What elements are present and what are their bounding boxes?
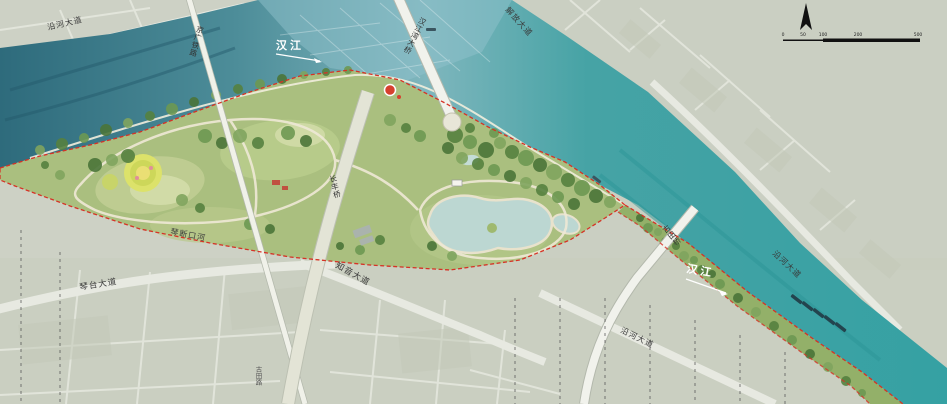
lake-island xyxy=(487,223,497,233)
masterplan-map: 汉江 汉江 汉江湾大桥 京广铁路 长丰桥 古田桥 古田路 沿河大道 解放大道 沿… xyxy=(0,0,947,404)
river-label-left: 汉江 xyxy=(276,38,304,52)
scale-tick-0: 0 xyxy=(782,32,785,38)
road-gutian-label: 古田路 xyxy=(254,365,262,387)
scale-tick-100: 100 xyxy=(819,32,828,38)
scale-tick-50: 50 xyxy=(800,32,806,38)
white-pavilion xyxy=(452,180,462,186)
site-plan-svg: 汉江 汉江 汉江湾大桥 京广铁路 长丰桥 古田桥 古田路 沿河大道 解放大道 沿… xyxy=(0,0,947,404)
scale-tick-200: 200 xyxy=(854,32,863,38)
scale-tick-500: 500 xyxy=(914,32,923,38)
